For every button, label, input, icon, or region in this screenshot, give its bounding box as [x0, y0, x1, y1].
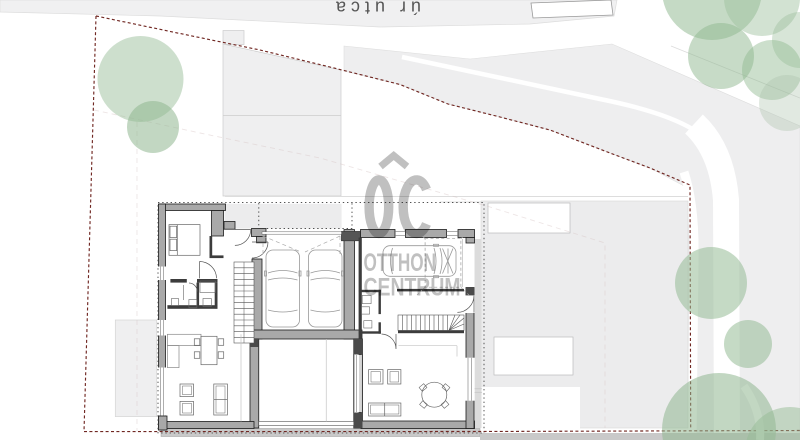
svg-text:CENTRUM: CENTRUM — [364, 274, 461, 302]
svg-text:úr utca: úr utca — [331, 0, 421, 18]
